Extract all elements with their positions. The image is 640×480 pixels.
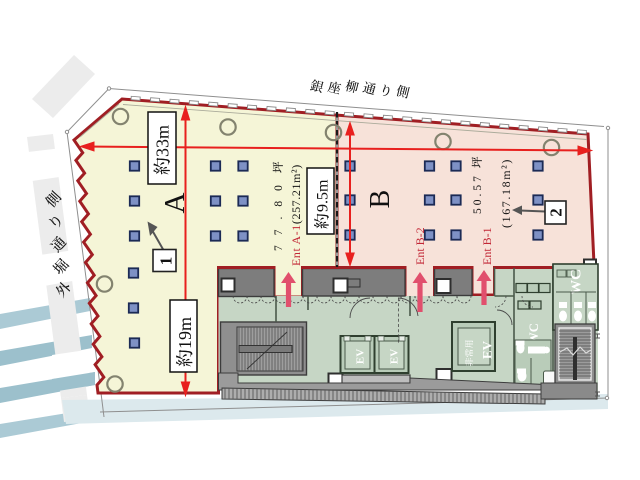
- svg-text:2: 2: [547, 208, 566, 217]
- svg-text:Ent A-1(257.21m²): Ent A-1(257.21m²): [289, 164, 303, 266]
- svg-text:9.5m: 9.5m: [315, 179, 332, 212]
- svg-text:77.80: 77.80: [273, 175, 285, 251]
- svg-text:Ent B-1: Ent B-1: [480, 227, 494, 265]
- svg-text:WC: WC: [568, 269, 584, 295]
- svg-text:EV: EV: [389, 349, 401, 364]
- svg-text:19m: 19m: [175, 317, 195, 349]
- svg-text:A: A: [159, 192, 191, 213]
- svg-text:(167.18m²): (167.18m²): [499, 158, 513, 228]
- svg-text:B: B: [365, 190, 396, 209]
- svg-text:1: 1: [157, 257, 176, 266]
- svg-text:50.57: 50.57: [472, 173, 484, 214]
- svg-text:EV: EV: [355, 349, 367, 364]
- svg-text:EV: EV: [480, 340, 495, 359]
- svg-text:33m: 33m: [153, 125, 173, 157]
- svg-text:Ent B-2: Ent B-2: [413, 227, 427, 265]
